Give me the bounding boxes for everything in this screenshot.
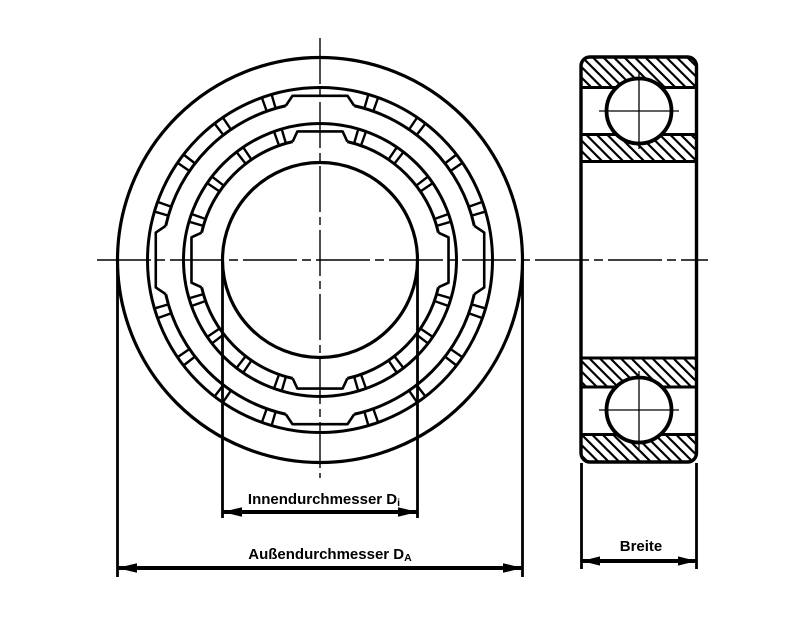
inner-cage-bar xyxy=(434,214,448,219)
outer-cage-bar xyxy=(409,391,417,403)
outer-cage-bar xyxy=(272,412,276,426)
arrow-left-icon xyxy=(223,507,243,517)
width-label: Breite xyxy=(620,538,663,555)
outer-cage-bar xyxy=(364,412,368,426)
inner-cage-bar xyxy=(394,356,403,368)
inner-cage-bar xyxy=(420,183,432,191)
outer-cage-bar xyxy=(417,124,426,135)
inner-cage-bar xyxy=(354,377,358,391)
outer-cage-bar xyxy=(184,155,195,164)
outer-cage-bar xyxy=(223,391,231,403)
inner-cage-bar xyxy=(237,152,246,164)
inner-cage-bar xyxy=(282,129,286,143)
outer-cage-bar xyxy=(177,349,189,357)
inner-cage-bar xyxy=(243,147,251,159)
inner-cage-bar xyxy=(274,374,279,388)
bearing-technical-drawing: Innendurchmesser Di Außendurchmesser DA … xyxy=(0,0,800,627)
outer-cage-bar xyxy=(215,124,224,135)
outer-cage-bar xyxy=(373,98,378,112)
outer-cage-bar xyxy=(451,163,463,171)
outer-cage-bar xyxy=(451,349,463,357)
inner-cage-bar xyxy=(189,294,203,298)
outer-cage-bar xyxy=(158,202,172,207)
inner-cage-bar xyxy=(243,360,251,372)
inner-cage-bar xyxy=(437,294,451,298)
outer-cage-bar xyxy=(272,94,276,108)
inner-cage-bar xyxy=(212,177,224,186)
inner-cage-bar xyxy=(354,129,358,143)
inner-cage-bar xyxy=(434,301,448,306)
outer-cage-bar xyxy=(262,409,267,423)
inner-cage-bar xyxy=(207,183,219,191)
inner-cage-bar xyxy=(274,131,279,145)
arrow-left-icon xyxy=(582,556,601,565)
outer-cage-bar xyxy=(154,212,168,216)
inner-cage-bar xyxy=(191,301,205,306)
inner-cage-bar xyxy=(361,374,366,388)
inner-cage-bar xyxy=(394,152,403,164)
width-dimension: Breite xyxy=(582,463,697,569)
inner-cage-bar xyxy=(388,147,396,159)
inner-cage-bar xyxy=(237,356,246,368)
inner-diameter-label: Innendurchmesser Di xyxy=(248,491,400,509)
inner-cage-bar xyxy=(420,328,432,336)
outer-cage-bar xyxy=(154,304,168,308)
inner-cage-bar xyxy=(437,222,451,226)
outer-cage-bar xyxy=(223,117,231,129)
outer-cage-bar xyxy=(472,212,486,216)
outer-cage-bar xyxy=(373,409,378,423)
arrow-left-icon xyxy=(118,563,138,573)
outer-cage-bar xyxy=(177,163,189,171)
outer-cage-bar xyxy=(472,304,486,308)
outer-cage-bar xyxy=(409,117,417,129)
technical-drawing-page: Innendurchmesser Di Außendurchmesser DA … xyxy=(0,0,800,627)
outer-cage-bar xyxy=(184,357,195,366)
inner-cage-bar xyxy=(361,131,366,145)
outer-cage-bar xyxy=(445,357,456,366)
arrow-right-icon xyxy=(678,556,697,565)
outer-cage-bar xyxy=(469,313,483,318)
outer-cage-bar xyxy=(469,202,483,207)
outer-diameter-label: Außendurchmesser DA xyxy=(248,546,412,564)
inner-cage-bar xyxy=(388,360,396,372)
arrow-right-icon xyxy=(398,507,418,517)
outer-cage-bar xyxy=(262,98,267,112)
outer-cage-bar xyxy=(158,313,172,318)
inner-cage-bar xyxy=(189,222,203,226)
inner-cage-bar xyxy=(191,214,205,219)
outer-cage-bar xyxy=(445,155,456,164)
inner-cage-bar xyxy=(416,177,428,186)
inner-cage-bar xyxy=(282,377,286,391)
outer-cage-bar xyxy=(364,94,368,108)
arrow-right-icon xyxy=(503,563,523,573)
inner-cage-bar xyxy=(207,328,219,336)
